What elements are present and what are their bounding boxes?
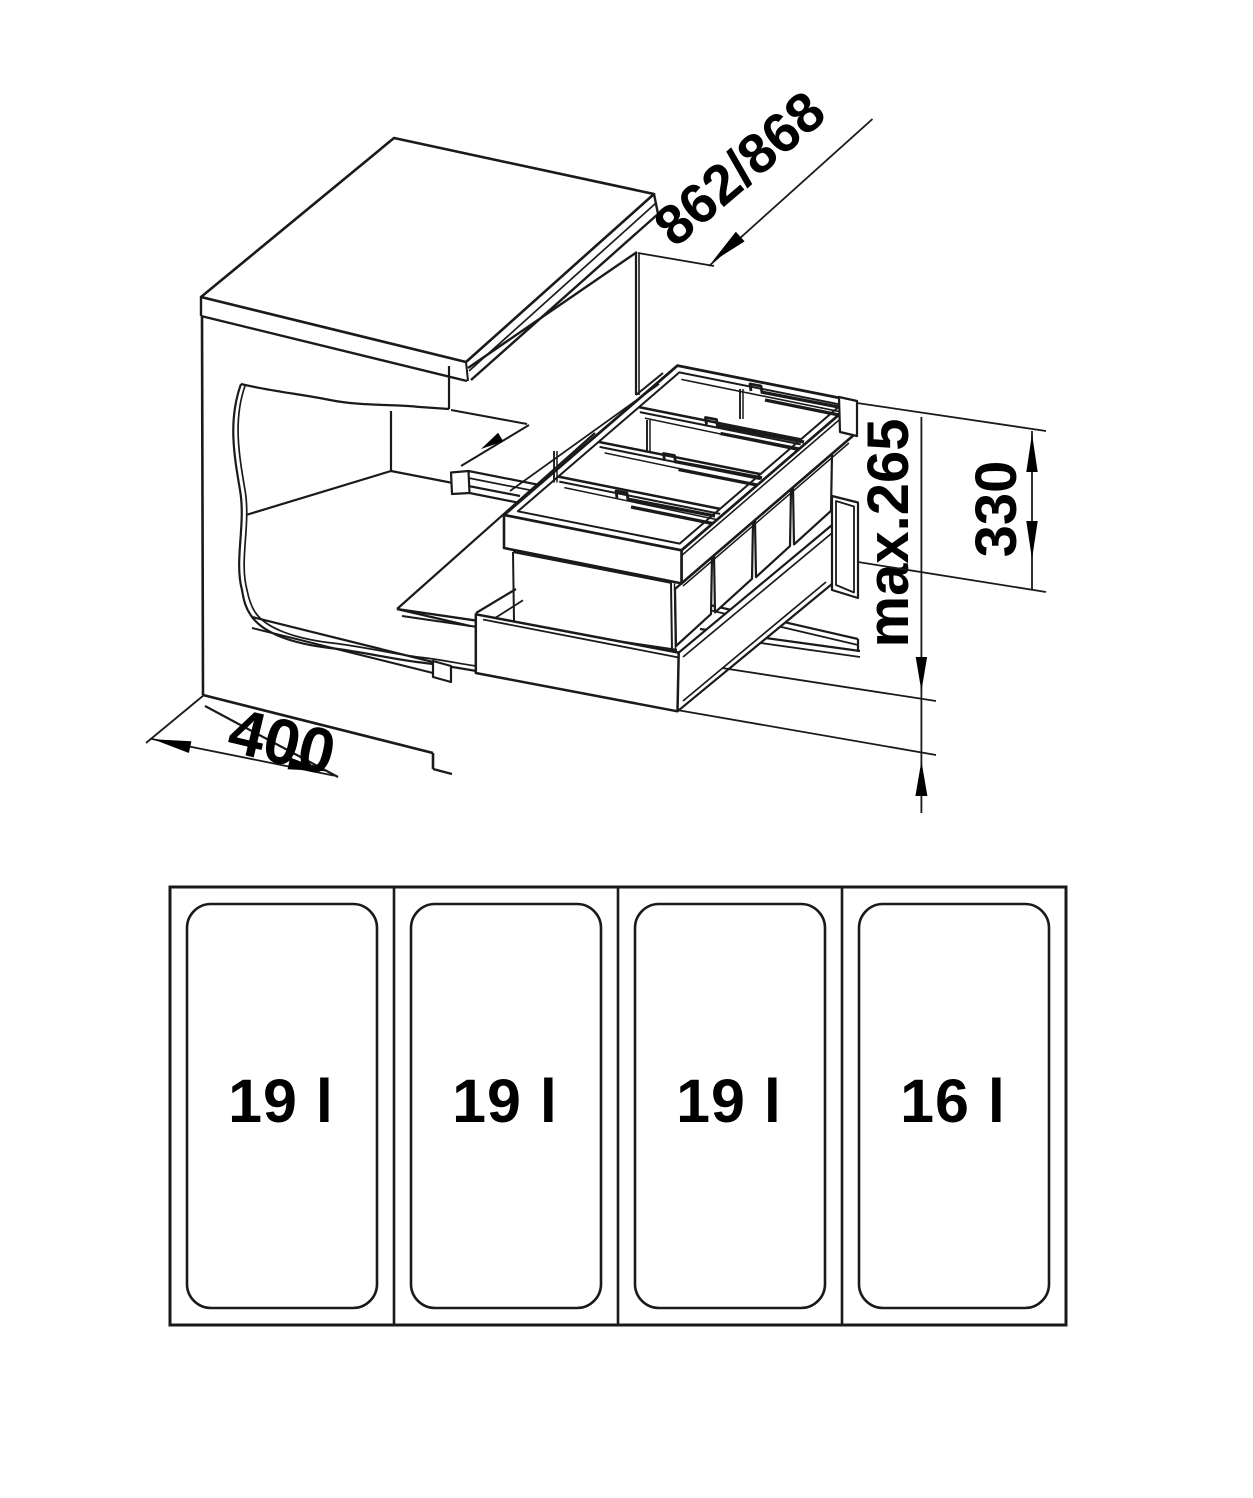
- svg-text:max.265: max.265: [856, 419, 921, 648]
- svg-text:19 l: 19 l: [452, 1067, 558, 1135]
- svg-text:16 l: 16 l: [900, 1067, 1006, 1135]
- svg-text:19 l: 19 l: [228, 1067, 334, 1135]
- svg-text:19 l: 19 l: [676, 1067, 782, 1135]
- svg-text:330: 330: [964, 461, 1029, 558]
